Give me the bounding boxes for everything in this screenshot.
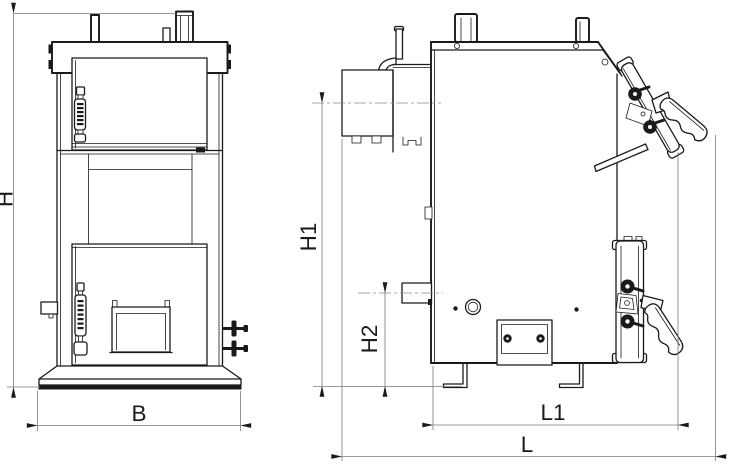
dimension-label-H2: H2 [357, 325, 382, 354]
base-strip [39, 385, 242, 390]
latch-pin [625, 301, 630, 306]
stub-pipe [41, 302, 58, 314]
dimension-label-L: L [521, 432, 534, 457]
lower-door-side [613, 237, 686, 363]
base-flare-right [223, 366, 242, 379]
ash-hatch [110, 301, 172, 353]
legs [444, 364, 584, 388]
stub-mark [428, 299, 432, 305]
port-dot [574, 307, 578, 311]
dimension-H1: H1 [296, 103, 322, 386]
fitting-crossbar [232, 321, 237, 337]
side-view [342, 14, 710, 388]
small-stub [163, 28, 170, 42]
port-dot [453, 306, 457, 310]
return-stub-side [402, 283, 432, 305]
upper-door [72, 58, 207, 153]
top-screw [454, 43, 459, 48]
lower-door [72, 244, 207, 365]
flue-foot [352, 136, 361, 143]
upper-door-panel [72, 58, 207, 150]
chamfer-screw [602, 59, 608, 65]
drawing-canvas: H B [0, 0, 735, 470]
door-flange [595, 144, 649, 172]
bottom-access-plate [497, 320, 552, 365]
fitting-head [244, 325, 249, 332]
flue-foot [372, 136, 381, 143]
base-band [39, 379, 241, 385]
mid-frame [57, 151, 223, 245]
lower-grip-handle [640, 301, 685, 358]
upper-door-side [595, 56, 711, 172]
dimension-label-H1: H1 [296, 223, 321, 252]
front-pipe-side [455, 14, 477, 42]
dimension-H2: H2 [357, 293, 385, 386]
handle-knob [75, 134, 86, 142]
top-screw [573, 43, 578, 48]
hatch-clip [165, 301, 170, 308]
top-connection-pipes [91, 12, 193, 43]
dimension-label-L1: L1 [540, 400, 565, 425]
flue-bracket [403, 137, 421, 145]
hatch-clip [113, 301, 118, 308]
base-flare-left [39, 366, 57, 379]
base-plinth [39, 366, 242, 390]
chimney-outlet [176, 12, 193, 43]
rear-pipe-side [576, 18, 589, 42]
fitting-crossbar [232, 341, 237, 357]
side-tab [228, 60, 232, 69]
handle-knob [74, 342, 87, 355]
valve-rod [396, 29, 403, 59]
dimension-label-B: B [131, 401, 146, 426]
plate-bolt-center [539, 337, 542, 340]
flue-outlet-assembly [342, 27, 430, 153]
stub-tab [49, 314, 53, 318]
water-stub-front [41, 302, 58, 318]
drain-fittings [223, 321, 249, 357]
centerlines [312, 103, 462, 387]
sensor-pocket [425, 207, 432, 219]
lifting-lugs [455, 14, 589, 42]
side-ports [453, 300, 578, 315]
side-body-outline [425, 42, 622, 363]
handle-neck [79, 336, 83, 342]
side-tab [49, 45, 53, 54]
rear-leg [560, 364, 584, 388]
dimension-B: B [38, 391, 241, 431]
handle-cap [77, 87, 85, 95]
front-view [39, 12, 249, 390]
side-tab [228, 45, 232, 54]
dimension-L: L [342, 135, 716, 461]
safety-pipe [91, 15, 99, 42]
fitting-head [244, 345, 249, 352]
front-leg [444, 364, 468, 388]
handle-cap [77, 283, 84, 291]
boiler-technical-drawing: H B [0, 0, 735, 470]
latch-pin [641, 112, 645, 116]
drain-port-inner [468, 302, 478, 312]
dimension-label-H: H [0, 191, 18, 207]
side-tab [49, 60, 53, 69]
plate-bolt-center [506, 337, 509, 340]
